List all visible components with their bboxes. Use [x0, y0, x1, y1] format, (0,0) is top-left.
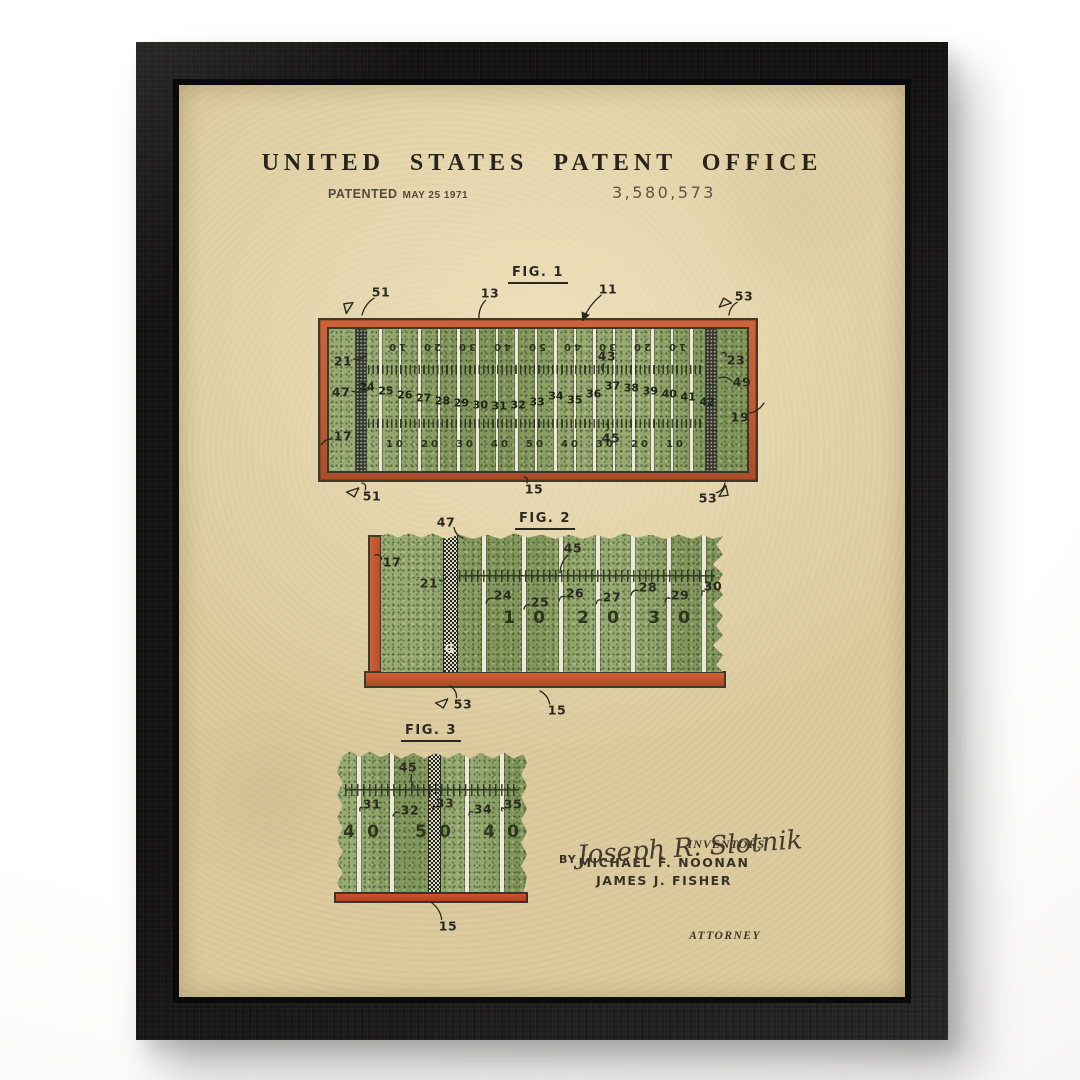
- fig1-goal-line-left: [356, 329, 366, 471]
- fig1-yard-number-top: 10: [666, 341, 686, 352]
- attorney-label: ATTORNEY: [563, 930, 765, 942]
- patented-label: PATENTED: [328, 187, 398, 201]
- reference-callout-47: 47: [437, 515, 455, 530]
- reference-callout-17: 17: [383, 555, 401, 570]
- fig1-field-turf: 1020304050403020101020304050403020102425…: [327, 327, 749, 473]
- fig1-reference-numeral: 34: [548, 390, 563, 403]
- fig2-yard-line: [522, 532, 526, 672]
- reference-callout-11: 11: [599, 282, 617, 297]
- reference-callout-23: 23: [727, 353, 745, 368]
- fig2-field-detail: G102030: [368, 532, 736, 694]
- fig1-reference-numeral: 31: [492, 400, 507, 413]
- fig1-yard-number-bottom: 10: [386, 439, 406, 450]
- reference-callout-45: 45: [602, 431, 620, 446]
- fig2-label: FIG. 2: [515, 511, 575, 530]
- fig1-reference-numeral: 28: [435, 395, 450, 408]
- fig1-yard-number-bottom: 40: [491, 439, 511, 450]
- fig3-yard-line: [500, 750, 504, 893]
- fig1-yard-number-top: 10: [386, 341, 406, 352]
- fig3-label: FIG. 3: [401, 723, 461, 742]
- fig3-yard-line: [465, 750, 469, 893]
- fig3-yard-number-digit: 5: [415, 822, 427, 842]
- patented-date: MAY 25 1971: [403, 190, 469, 201]
- fig1-reference-numeral: 27: [416, 392, 431, 405]
- fig1-yard-number-bottom: 20: [421, 439, 441, 450]
- fig1-reference-numeral: 33: [529, 396, 544, 409]
- fig3-yard-number-digit: 0: [507, 822, 519, 842]
- reference-callout-30: 30: [704, 579, 722, 594]
- reference-callout-13: 13: [481, 286, 499, 301]
- reference-callout-32: 32: [401, 803, 419, 818]
- fig2-yard-line: [482, 532, 486, 672]
- fig1-yard-number-top: 40: [561, 341, 581, 352]
- fig2-yard-number-digit: 1: [503, 608, 515, 628]
- reference-callout-29: 29: [671, 588, 689, 603]
- fig2-yard-number-digit: 0: [678, 608, 690, 628]
- reference-callout-53: 53: [699, 491, 717, 506]
- leader-line: [583, 295, 601, 320]
- reference-callout-28: 28: [639, 580, 657, 595]
- fig3-midfield-detail: 405040: [335, 750, 533, 906]
- fig1-yard-number-top: 20: [631, 341, 651, 352]
- picture-frame: UNITED STATES PATENT OFFICE PATENTEDMAY …: [136, 42, 948, 1040]
- fig1-yard-number-bottom: 10: [666, 439, 686, 450]
- fig1-reference-numeral: 37: [605, 380, 620, 393]
- fig3-field-turf: 405040: [337, 750, 527, 893]
- fig2-yard-line: [559, 532, 563, 672]
- fig1-reference-numeral: 40: [662, 388, 677, 401]
- fig1-reference-numeral: 41: [680, 391, 695, 404]
- fig2-hash-marks: [459, 570, 715, 582]
- fig2-bottom-border: [364, 671, 726, 688]
- reference-callout-25: 25: [531, 595, 549, 610]
- fig2-yard-number-digit: 3: [648, 608, 660, 628]
- fig2-yard-number-digit: 2: [577, 608, 589, 628]
- reference-callout-21: 21: [420, 576, 438, 591]
- reference-callout-15: 15: [439, 919, 457, 934]
- framed-patent-print-photo: UNITED STATES PATENT OFFICE PATENTEDMAY …: [0, 0, 1080, 1080]
- reference-callout-49: 49: [733, 375, 751, 390]
- reference-callout-34: 34: [474, 802, 492, 817]
- fig3-yard-number-digit: 0: [367, 822, 379, 842]
- fig1-yard-number-bottom: 20: [631, 439, 651, 450]
- fig1-hash-marks-upper: [368, 365, 704, 374]
- fig1-yard-number-bottom: 40: [561, 439, 581, 450]
- fig2-yard-line: [702, 532, 706, 672]
- fig3-hash-marks: [345, 784, 519, 796]
- reference-callout-45: 45: [564, 541, 582, 556]
- fig1-reference-numeral: 26: [397, 389, 412, 402]
- reference-callout-15: 15: [548, 703, 566, 718]
- by-label: BY: [559, 853, 577, 866]
- reference-callout-15: 15: [525, 482, 543, 497]
- reference-callout-47: 47: [332, 385, 350, 400]
- fig2-goal-letter: G: [443, 642, 456, 656]
- fig1-yard-number-top: 40: [491, 341, 511, 352]
- fig3-yard-line: [390, 750, 394, 893]
- leader-line: [362, 298, 374, 315]
- fig1-yard-number-top: 20: [421, 341, 441, 352]
- fig3-yard-number-digit: 0: [439, 822, 451, 842]
- patent-office-title: UNITED STATES PATENT OFFICE: [179, 150, 905, 177]
- fig1-reference-numeral: 35: [567, 394, 582, 407]
- fig1-reference-numeral: 38: [624, 382, 639, 395]
- fig2-left-border: [368, 535, 382, 673]
- fig1-yard-number-top: 50: [526, 341, 546, 352]
- reference-callout-24: 24: [494, 588, 512, 603]
- reference-callout-17: 17: [334, 429, 352, 444]
- reference-callout-27: 27: [603, 590, 621, 605]
- reference-callout-53: 53: [735, 289, 753, 304]
- fig3-bottom-border: [334, 892, 528, 903]
- patent-paper: UNITED STATES PATENT OFFICE PATENTEDMAY …: [179, 85, 905, 997]
- inventor-name: JAMES J. FISHER: [563, 873, 765, 888]
- reference-callout-31: 31: [363, 797, 381, 812]
- fig1-reference-numeral: 24: [359, 381, 374, 394]
- fig3-yard-line: [357, 750, 361, 893]
- fig2-yard-number-digit: 0: [607, 608, 619, 628]
- fig1-reference-numeral: 39: [643, 385, 658, 398]
- fig3-yard-number-digit: 4: [343, 822, 355, 842]
- fig1-reference-numeral: 32: [510, 399, 525, 412]
- reference-callout-26: 26: [566, 586, 584, 601]
- fig1-label: FIG. 1: [508, 265, 568, 284]
- fig1-reference-numeral: 42: [699, 396, 714, 409]
- fig1-reference-numeral: 29: [454, 397, 469, 410]
- reference-callout-43: 43: [598, 349, 616, 364]
- leader-line: [479, 300, 486, 318]
- patented-date-line: PATENTEDMAY 25 1971: [328, 185, 468, 203]
- fig1-hash-marks-lower: [368, 419, 704, 428]
- patent-number: 3,580,573: [612, 183, 716, 202]
- corner-flag-icon: [340, 298, 359, 320]
- fig3-yard-number-digit: 4: [483, 822, 495, 842]
- reference-callout-53: 53: [454, 697, 472, 712]
- fig1-yard-number-bottom: 30: [456, 439, 476, 450]
- fig1-football-field-plan: 1020304050403020101020304050403020102425…: [318, 318, 758, 482]
- fig1-reference-numeral: 25: [378, 385, 393, 398]
- reference-callout-35: 35: [504, 797, 522, 812]
- fig2-yard-number-digit: 0: [533, 608, 545, 628]
- frame-inner-lip: UNITED STATES PATENT OFFICE PATENTEDMAY …: [173, 79, 911, 1003]
- corner-flag-icon: [715, 295, 734, 317]
- fig1-reference-numeral: 36: [586, 388, 601, 401]
- reference-callout-21: 21: [334, 354, 352, 369]
- fig1-yard-number-bottom: 50: [526, 439, 546, 450]
- reference-callout-51: 51: [363, 489, 381, 504]
- reference-callout-33: 33: [436, 796, 454, 811]
- reference-callout-51: 51: [372, 285, 390, 300]
- inventors-block: INVENTORS MICHAEL F. NOONAN JAMES J. FIS…: [563, 837, 765, 942]
- reference-callout-19: 19: [731, 410, 749, 425]
- fig2-yard-line: [631, 532, 635, 672]
- attorney-signature-row: BY Joseph R. Slotnik: [563, 890, 765, 930]
- fig1-yard-number-top: 30: [456, 341, 476, 352]
- fig2-yard-line: [596, 532, 600, 672]
- fig1-yard-line: [379, 329, 382, 471]
- fig1-yard-line: [651, 329, 654, 471]
- fig1-reference-numeral: 30: [473, 399, 488, 412]
- reference-callout-45: 45: [399, 760, 417, 775]
